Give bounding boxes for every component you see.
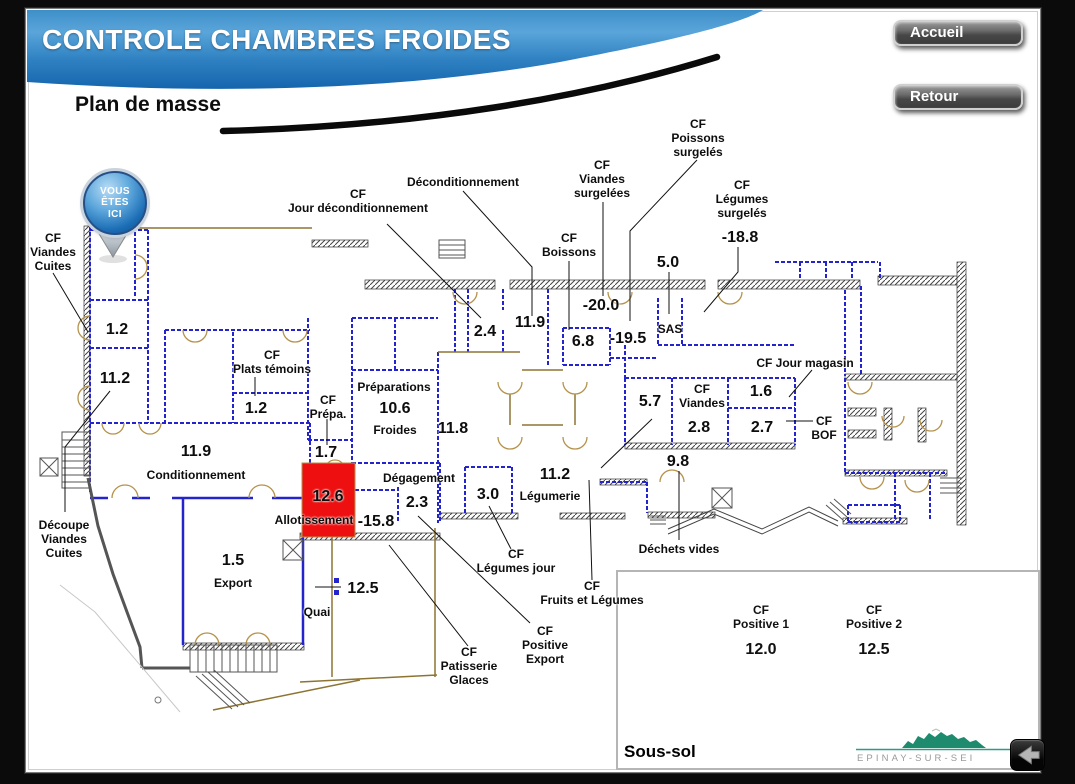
inset-room-1: CFPositive 112.0 <box>733 603 789 659</box>
you-are-here-marker: VOUSÊTESICI <box>83 171 147 235</box>
back-arrow-icon <box>1011 740 1044 770</box>
sous-sol-inset: Sous-sol EPINAY-SUR-SEI CFPositive 112.0… <box>616 570 1040 770</box>
inset-room-value: 12.5 <box>846 640 902 659</box>
sous-sol-title: Sous-sol <box>624 742 696 762</box>
inset-room-value: 12.0 <box>733 640 789 659</box>
logo-mountain-icon <box>902 732 986 748</box>
logo-text: EPINAY-SUR-SEI <box>857 753 975 764</box>
accueil-button[interactable]: Accueil <box>893 20 1023 46</box>
back-button[interactable] <box>1010 739 1045 771</box>
inset-room-2: CFPositive 212.5 <box>846 603 902 659</box>
page-subtitle: Plan de masse <box>75 93 221 117</box>
page-title: CONTROLE CHAMBRES FROIDES <box>42 24 511 56</box>
epinay-logo: EPINAY-SUR-SEI <box>852 728 1032 766</box>
you-are-here-label: VOUSÊTESICI <box>100 186 130 220</box>
retour-button[interactable]: Retour <box>893 84 1023 110</box>
screen: { "header": { "title": "CONTROLE CHAMBRE… <box>0 0 1075 784</box>
